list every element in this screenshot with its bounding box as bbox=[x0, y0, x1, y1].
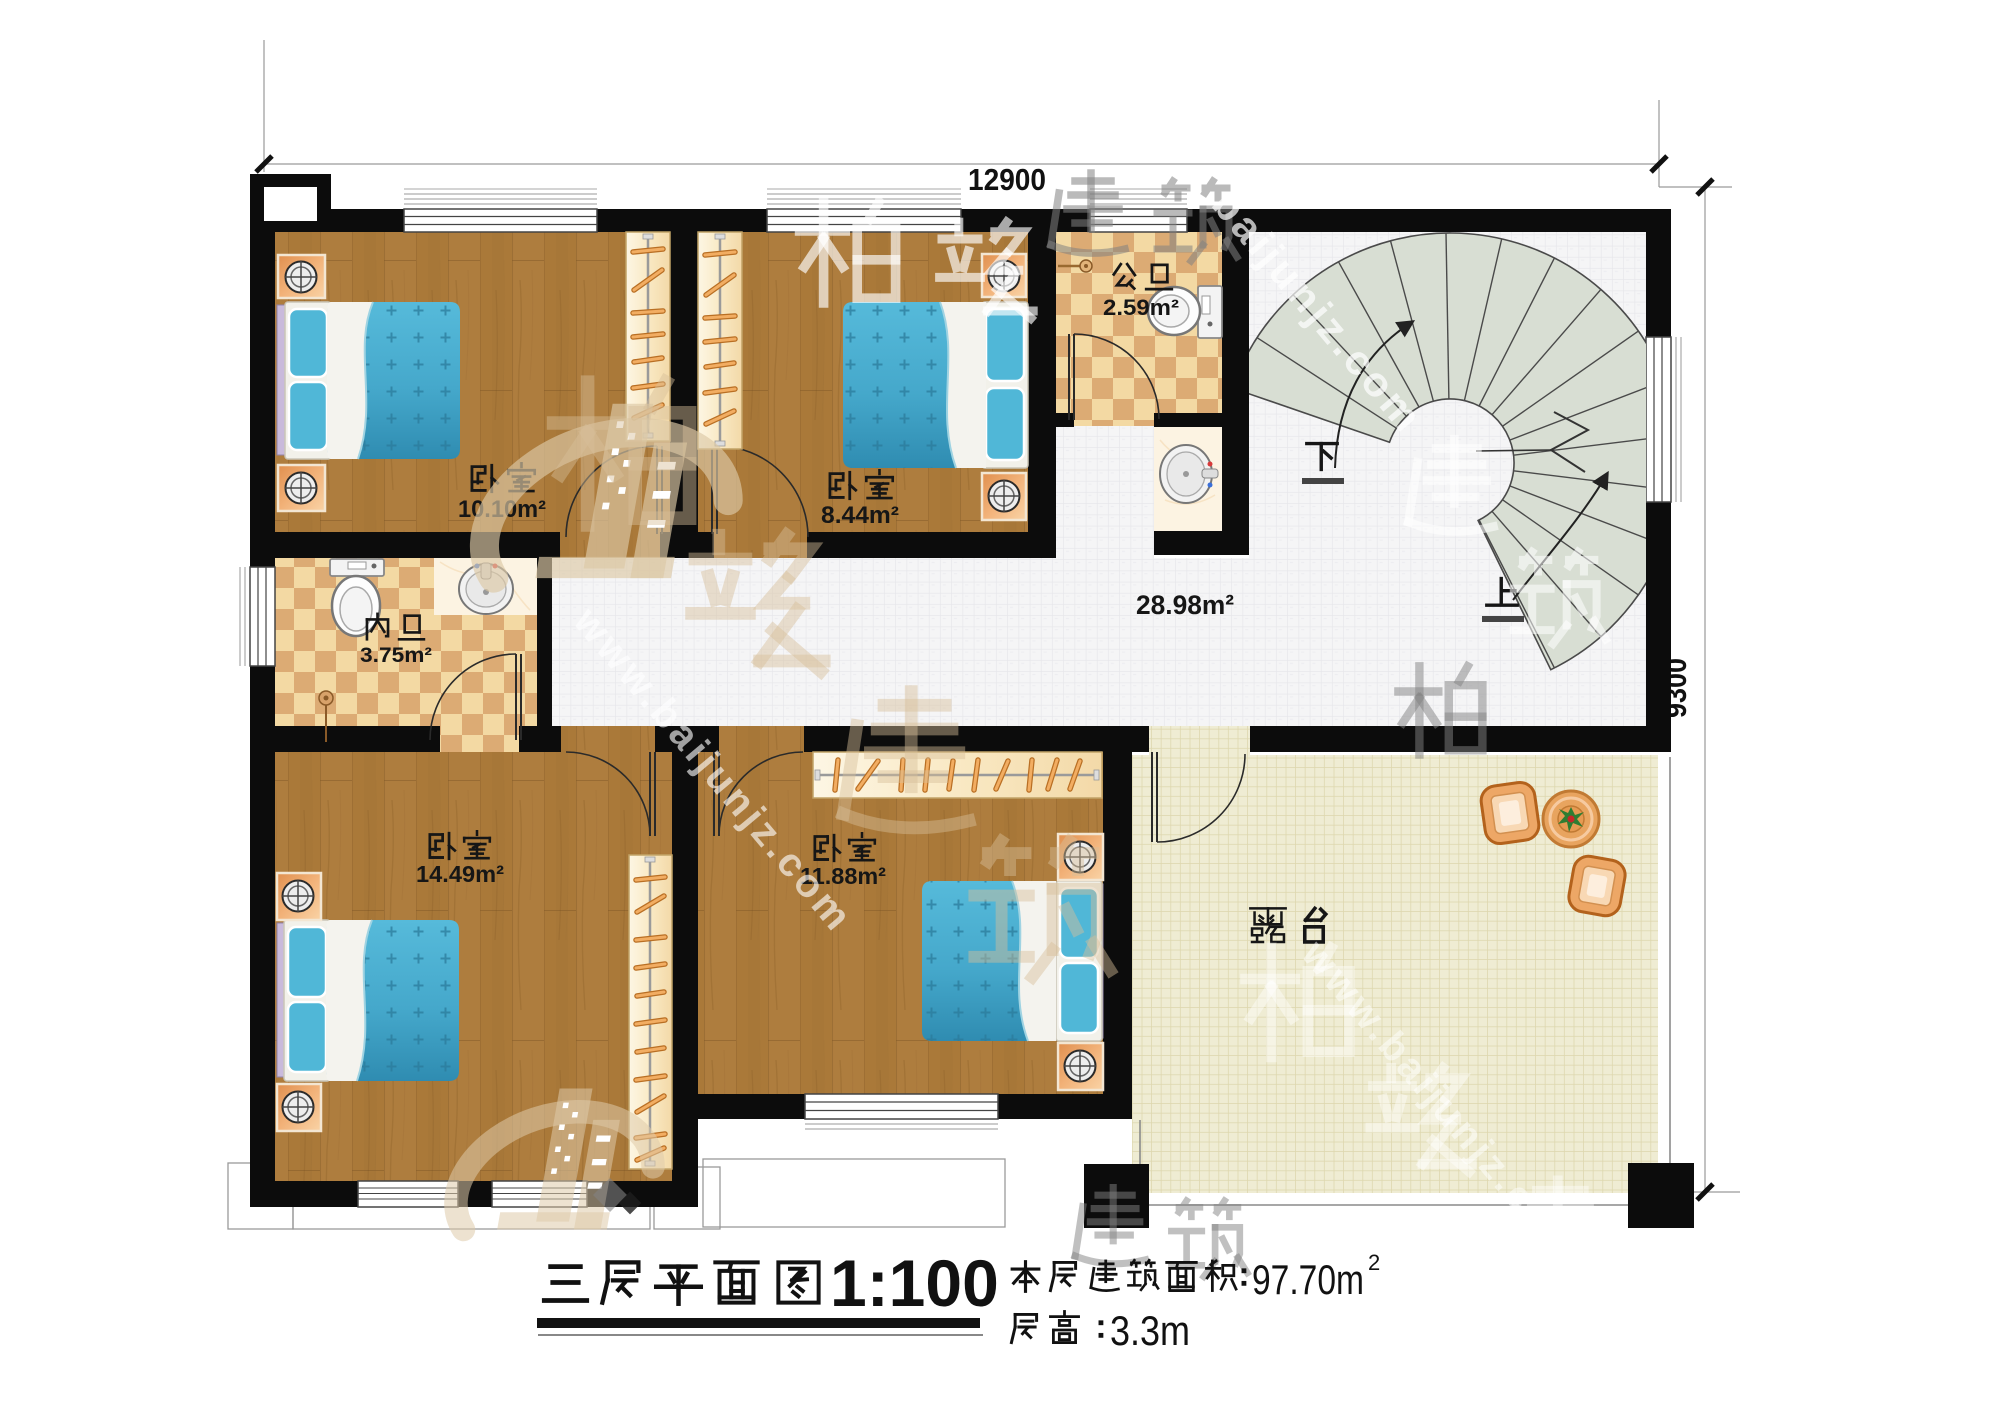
svg-text:14.49m²: 14.49m² bbox=[416, 861, 504, 887]
svg-text:8.44m²: 8.44m² bbox=[821, 502, 899, 529]
svg-text:97.70m: 97.70m bbox=[1252, 1256, 1364, 1303]
svg-text:2.59m²: 2.59m² bbox=[1103, 295, 1179, 320]
svg-text:3.75m²: 3.75m² bbox=[360, 644, 432, 667]
svg-text:28.98m²: 28.98m² bbox=[1136, 590, 1234, 620]
svg-text:1:100: 1:100 bbox=[830, 1246, 999, 1320]
svg-text:3.3m: 3.3m bbox=[1110, 1307, 1190, 1354]
svg-text:2: 2 bbox=[1368, 1250, 1380, 1275]
svg-text:12900: 12900 bbox=[968, 162, 1046, 197]
